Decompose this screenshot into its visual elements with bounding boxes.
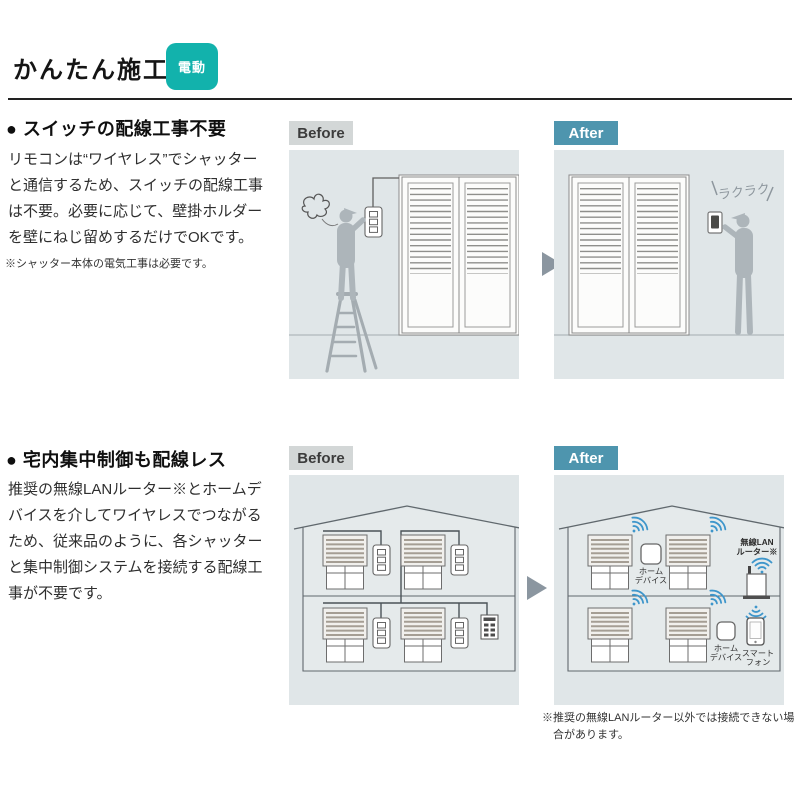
wall-switch-icon — [373, 618, 390, 648]
router-label: 無線LAN — [740, 537, 773, 547]
shutter-icon — [399, 175, 519, 335]
home-device-label: ホーム — [714, 644, 738, 653]
section1-after-illustration: ラクラク — [554, 150, 784, 379]
section2-footnote: ※推奨の無線LANルーター以外では接続できない場合があります。 — [542, 710, 799, 744]
section2-after-illustration: ホーム デバイス 無線LAN ルーター※ ホーム デバイス スマート フォン — [554, 475, 784, 705]
page-title: かんたん施工 — [13, 50, 169, 85]
window-shutter-icon — [588, 535, 632, 589]
section1-body: リモコンは“ワイヤレス”でシャッターと通信するため、スイッチの配線工事は不要。必… — [8, 147, 270, 251]
electric-badge: 電動 — [166, 43, 218, 90]
wall-switch-icon — [451, 545, 468, 575]
window-shutter-icon — [323, 535, 367, 589]
home-device-label: デバイス — [635, 575, 668, 585]
home-device-icon — [641, 544, 661, 564]
window-shutter-icon — [323, 608, 367, 662]
section1-note: ※シャッター本体の電気工事は必要です。 — [5, 255, 213, 271]
home-device-icon — [717, 622, 735, 640]
window-shutter-icon — [401, 608, 445, 662]
window-shutter-icon — [401, 535, 445, 589]
smartphone-label: スマート — [742, 649, 775, 658]
wall-switch-icon — [373, 545, 390, 575]
router-label: ルーター※ — [737, 547, 778, 557]
wall-switch-icon — [365, 207, 382, 237]
home-device-label: ホーム — [639, 567, 663, 576]
wall-switch-icon — [451, 618, 468, 648]
smartphone-icon — [747, 618, 764, 645]
window-shutter-icon — [588, 608, 632, 662]
header-divider — [8, 98, 792, 100]
section1-before-illustration — [289, 150, 519, 379]
section1-before-label: Before — [289, 121, 353, 145]
section1-heading: ● スイッチの配線工事不要 — [6, 115, 226, 141]
section2-heading: ● 宅内集中制御も配線レス — [6, 446, 226, 472]
section2-body: 推奨の無線LANルーター※とホームデバイスを介してワイヤレスでつながるため、従来… — [8, 477, 266, 607]
window-shutter-icon — [666, 608, 710, 662]
central-control-panel-icon — [481, 615, 498, 639]
home-device-label: デバイス — [710, 652, 743, 662]
smartphone-label: フォン — [746, 658, 771, 667]
section2-before-label: Before — [289, 446, 353, 470]
shutter-icon — [569, 175, 689, 335]
section2-before-illustration — [289, 475, 519, 705]
window-shutter-icon — [666, 535, 710, 589]
remote-holder-icon — [708, 212, 722, 233]
before-after-arrow-icon — [527, 576, 547, 600]
section1-after-label: After — [554, 121, 618, 145]
section2-after-label: After — [554, 446, 618, 470]
